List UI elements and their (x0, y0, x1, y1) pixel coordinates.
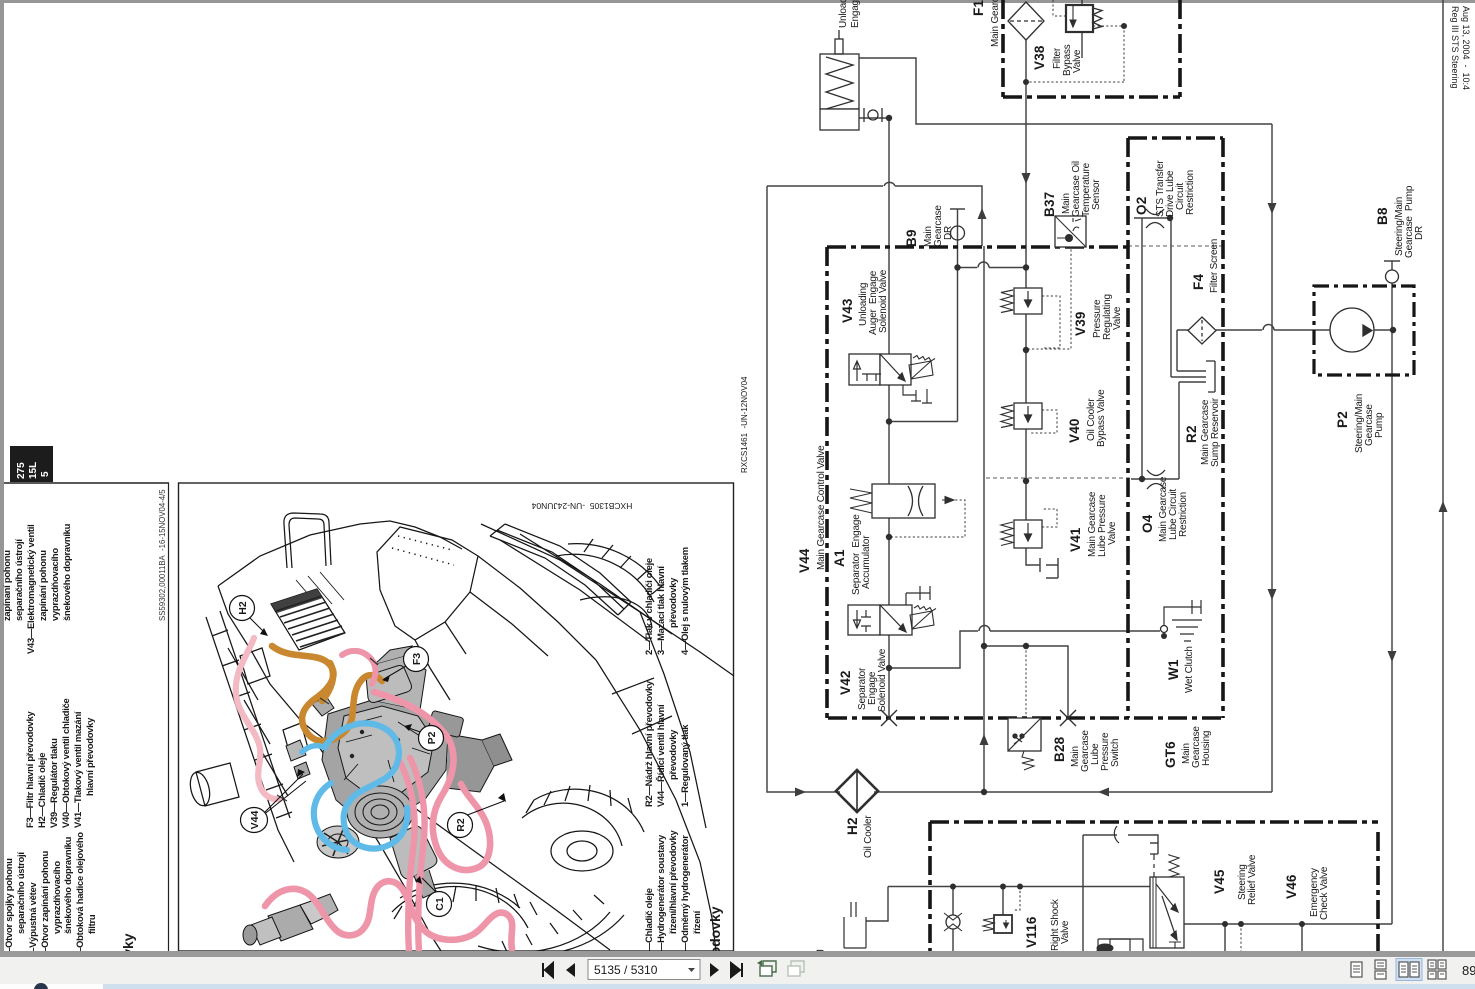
svg-text:Aug 13, 2004 - 10:4: Aug 13, 2004 - 10:4 (1461, 6, 1471, 90)
svg-text:1—Regulovaný tlak: 1—Regulovaný tlak (679, 724, 690, 807)
svg-text:O4: O4 (1140, 514, 1155, 533)
svg-text:O2: O2 (1134, 197, 1149, 215)
svg-text:Wet Clutch: Wet Clutch (1184, 646, 1195, 693)
svg-text:Restriction: Restriction (1185, 170, 1196, 215)
svg-text:F3: F3 (411, 653, 423, 665)
svg-text:RXCS1461 -UN-12NOV04: RXCS1461 -UN-12NOV04 (740, 376, 749, 473)
svg-text:P2: P2 (426, 731, 438, 744)
svg-text:Gearcase Pump: Gearcase Pump (1404, 185, 1415, 258)
svg-text:B9: B9 (904, 229, 919, 247)
svg-text:Valve: Valve (1060, 920, 1071, 944)
svg-text:Oil Cooler: Oil Cooler (863, 815, 874, 858)
svg-text:Engage: Engage (850, 0, 861, 28)
svg-text:Main Gearcase Control Valve: Main Gearcase Control Valve (816, 445, 827, 570)
svg-text:V46: V46 (1284, 874, 1299, 899)
svg-text:R2—Nádrž hlavní převodovky: R2—Nádrž hlavní převodovky (643, 680, 654, 807)
svg-text:V44: V44 (249, 811, 261, 830)
svg-text:Relief Valve: Relief Valve (1247, 854, 1258, 905)
svg-text:V44—Řídicí ventil hlavní: V44—Řídicí ventil hlavní (655, 704, 666, 807)
svg-text:převodovky: převodovky (667, 729, 678, 780)
svg-text:—Otvor zapínání pohonu: —Otvor zapínání pohonu (39, 851, 50, 957)
svg-text:DR: DR (1414, 226, 1425, 240)
svg-text:15L: 15L (28, 462, 39, 479)
svg-text:Accumulator: Accumulator (861, 535, 872, 589)
svg-text:H2: H2 (845, 817, 860, 835)
svg-text:V39: V39 (1073, 311, 1088, 336)
svg-text:GT6: GT6 (1163, 741, 1178, 768)
svg-text:—Obtoková hadice olejového: —Obtoková hadice olejového (74, 832, 85, 957)
svg-text:V44: V44 (797, 548, 812, 573)
svg-text:F4: F4 (1191, 274, 1206, 290)
svg-text:B37: B37 (1042, 192, 1057, 217)
svg-text:Filter Screen: Filter Screen (1209, 239, 1220, 293)
svg-text:V41—Tlakový ventil mazání: V41—Tlakový ventil mazání (72, 711, 83, 828)
svg-text:V116: V116 (1024, 916, 1039, 948)
svg-text:Sensor: Sensor (1091, 179, 1102, 210)
svg-text:V40—Obtokový ventil chladiče: V40—Obtokový ventil chladiče (60, 698, 71, 828)
svg-text:filtru: filtru (86, 914, 97, 934)
svg-text:V40: V40 (1067, 418, 1082, 443)
svg-text:2—Tlak v chladiči oleje: 2—Tlak v chladiči oleje (643, 558, 654, 655)
svg-text:šnekového dopravníku: šnekového dopravníku (62, 836, 73, 934)
svg-text:P2: P2 (1335, 411, 1350, 428)
svg-text:—Otvor spojky pohonu: —Otvor spojky pohonu (3, 858, 14, 957)
svg-text:Bypass Valve: Bypass Valve (1096, 389, 1107, 447)
svg-text:B28: B28 (1052, 736, 1067, 762)
svg-text:Sump Reservoir: Sump Reservoir (1210, 397, 1221, 467)
svg-text:DR: DR (943, 226, 954, 240)
svg-text:Pump: Pump (1374, 412, 1385, 438)
svg-text:R2: R2 (455, 818, 467, 832)
svg-text:HXCB1305 -UN-24JUN04: HXCB1305 -UN-24JUN04 (531, 501, 632, 511)
svg-text:3—Mazací tlak hlavní: 3—Mazací tlak hlavní (655, 566, 666, 655)
svg-text:275: 275 (16, 462, 27, 479)
svg-text:—Výpustná větev: —Výpustná větev (27, 882, 38, 957)
svg-text:W1: W1 (1166, 659, 1181, 680)
svg-text:Check Valve: Check Valve (1319, 866, 1330, 920)
svg-text:Valve: Valve (1112, 306, 1123, 330)
svg-text:H2—Chladič oleje: H2—Chladič oleje (36, 753, 47, 828)
svg-text:zapínání pohonu: zapínání pohonu (37, 550, 48, 621)
svg-text:Solenoid Valve: Solenoid Valve (877, 648, 888, 712)
svg-text:Switch: Switch (1110, 739, 1121, 767)
svg-text:F1: F1 (971, 0, 986, 16)
svg-text:H2: H2 (237, 601, 249, 615)
svg-text:hlavní převodovky: hlavní převodovky (84, 717, 95, 796)
svg-text:7—Odměrný hydrogenerátor: 7—Odměrný hydrogenerátor (679, 835, 690, 957)
svg-text:4—Olej s nulovým tlakem: 4—Olej s nulovým tlakem (679, 547, 690, 655)
svg-text:SS59302,00011BA -16-15NOV04-4: SS59302,00011BA -16-15NOV04-4/5 (158, 489, 167, 621)
svg-text:C1: C1 (434, 897, 446, 911)
svg-text:89: 89 (1462, 963, 1475, 978)
svg-text:B8: B8 (1375, 207, 1390, 225)
svg-text:V38: V38 (1032, 45, 1047, 70)
svg-text:V42: V42 (838, 670, 853, 695)
svg-text:Valve: Valve (1072, 49, 1083, 73)
svg-text:Reg III STS Steering: Reg III STS Steering (1450, 6, 1460, 89)
svg-text:V43: V43 (840, 298, 855, 323)
svg-text:Restriction: Restriction (1178, 492, 1189, 537)
svg-text:zapínaní pohonu: zapínaní pohonu (1, 550, 12, 621)
svg-text:vyprazdňovacího: vyprazdňovacího (49, 548, 60, 621)
svg-text:řízení/hlavní převodovky: řízení/hlavní převodovky (667, 830, 678, 934)
svg-text:A1: A1 (832, 549, 847, 567)
svg-text:2—Chladič oleje: 2—Chladič oleje (643, 888, 654, 957)
svg-text:Main Gearcas: Main Gearcas (990, 0, 1001, 47)
svg-text:V39—Regulátor tlaku: V39—Regulátor tlaku (48, 738, 59, 828)
svg-text:Unloadin: Unloadin (838, 0, 849, 28)
svg-text:Solenoid Valve: Solenoid Valve (878, 269, 889, 333)
svg-text:V43—Elektromagnetický ventil: V43—Elektromagnetický ventil (25, 524, 36, 654)
svg-text:F3—Filtr hlavní převodovky: F3—Filtr hlavní převodovky (24, 711, 35, 828)
svg-text:5135 / 5310: 5135 / 5310 (594, 963, 658, 977)
svg-text:vyprazdňovacího: vyprazdňovacího (51, 861, 62, 934)
svg-text:R2: R2 (1184, 425, 1199, 443)
svg-text:5: 5 (40, 471, 51, 477)
svg-text:Housing: Housing (1201, 731, 1212, 766)
svg-text:převodovky: převodovky (667, 577, 678, 628)
svg-text:řízení: řízení (691, 910, 702, 934)
svg-text:V41: V41 (1068, 527, 1083, 552)
svg-text:separačního ústrojí: separačního ústrojí (13, 539, 24, 621)
svg-text:separačního ústrojí: separačního ústrojí (15, 852, 26, 934)
svg-text:2—Hydrogenerátor soustavy: 2—Hydrogenerátor soustavy (655, 834, 666, 957)
svg-text:šnekového dopravníku: šnekového dopravníku (61, 523, 72, 621)
svg-text:V45: V45 (1212, 869, 1227, 894)
svg-text:Valve: Valve (1107, 521, 1118, 545)
